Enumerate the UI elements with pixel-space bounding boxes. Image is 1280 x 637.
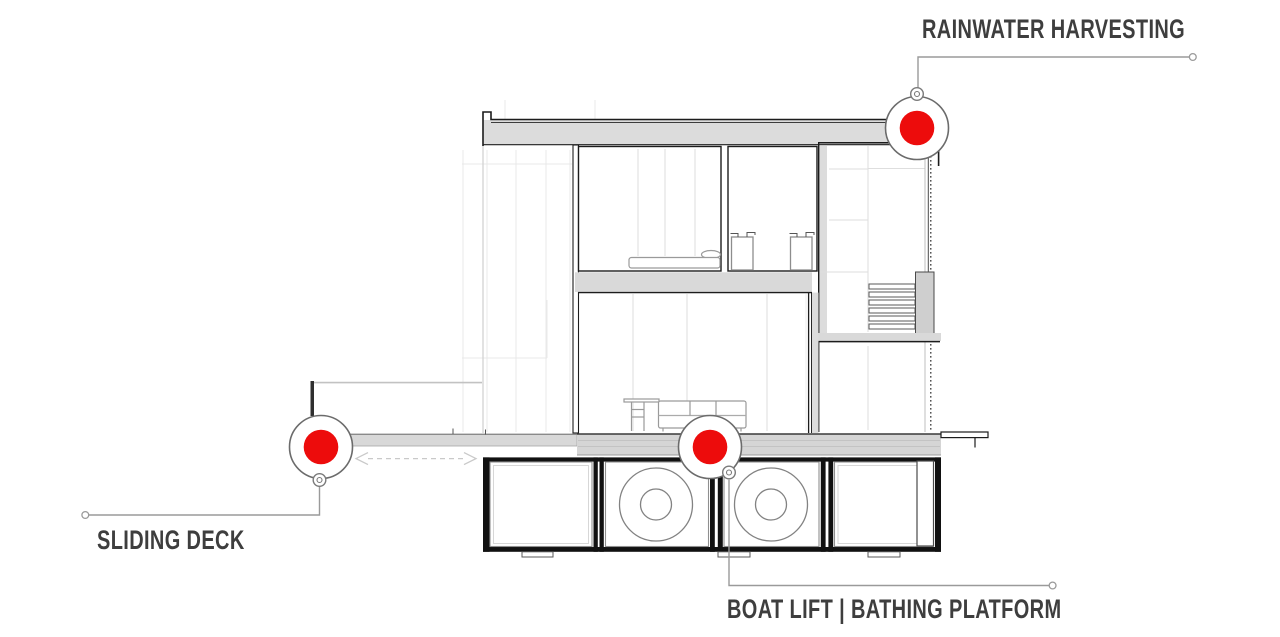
railing-post [311,381,315,416]
boat-lift-drum-right [735,468,808,541]
side-table [624,399,659,431]
boat-lift-drum-left [620,468,693,541]
boat-lift-marker-dot [693,430,728,465]
bedroom [579,147,722,272]
sliding-deck-leader-line [82,486,320,518]
bathing-platform [941,432,988,448]
slide-direction-arrow [356,453,476,465]
boat-lift-marker-badge [723,466,736,479]
sliding-deck-marker-badge [313,474,326,487]
sliding-deck-marker[interactable] [290,416,353,487]
rainwater-harvesting-label: RAINWATER HARVESTING [922,16,1185,43]
rainwater-leader-line [918,54,1196,88]
pontoon-cabinet [917,461,934,546]
rainwater-harvesting-marker[interactable] [886,88,949,160]
bathroom [728,147,817,272]
rainwater-marker-badge [911,88,924,101]
bathroom-fixture-right [790,233,815,271]
boat-lift-marker[interactable] [679,416,742,479]
houseboat-section-diagram: RAINWATER HARVESTING SLIDING DECK BOAT L… [0,0,1280,637]
floor-slab [575,272,812,292]
living-room [624,293,819,433]
rainwater-marker-dot [900,111,935,146]
main-deck-slab [577,434,941,455]
lower-right-room [819,342,868,432]
boat-lift-bathing-platform-label: BOAT LIFT | BATHING PLATFORM [727,596,1061,623]
bathroom-fixture-left [731,233,756,271]
sliding-deck-label: SLIDING DECK [97,527,245,554]
sliding-deck-marker-dot [304,430,339,465]
staircase [812,272,941,342]
